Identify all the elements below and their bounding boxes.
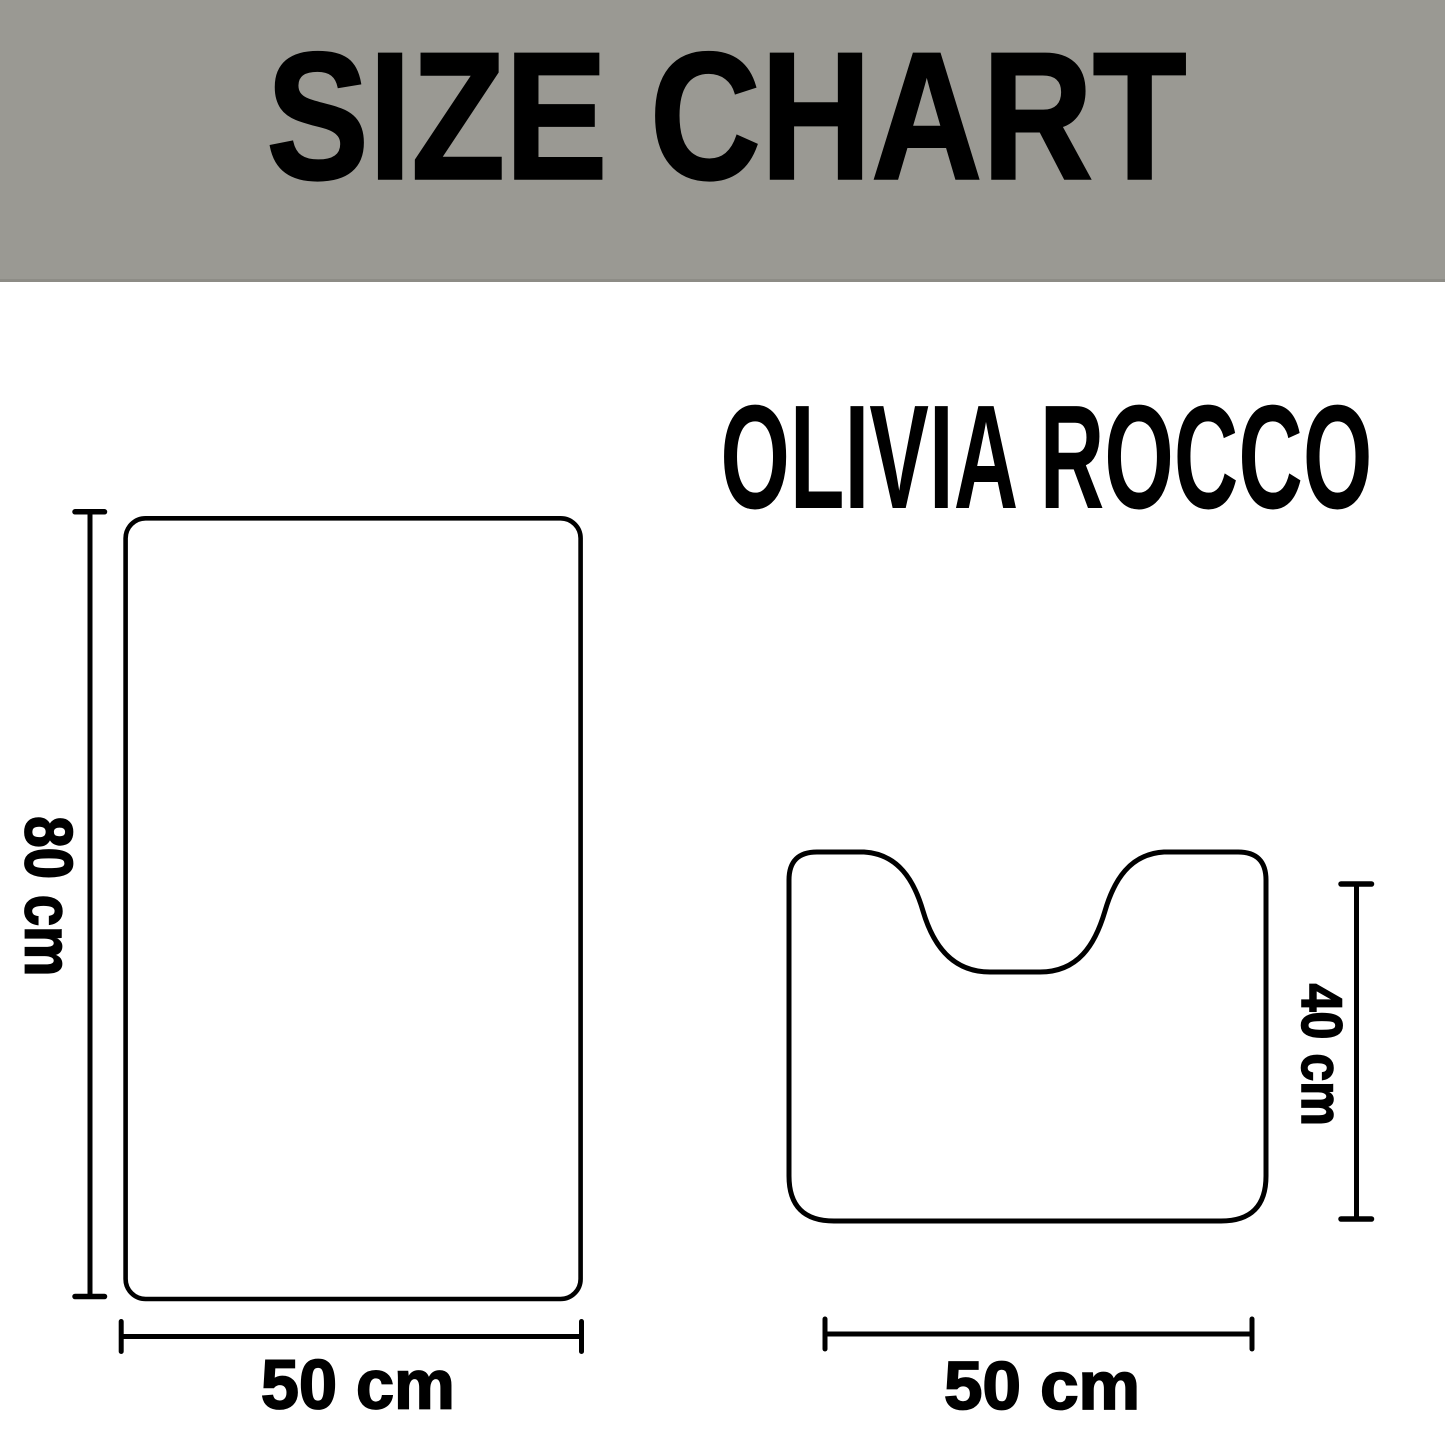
svg-text:40 cm: 40 cm [1289,984,1353,1126]
svg-text:50 cm: 50 cm [944,1348,1140,1424]
svg-text:50 cm: 50 cm [261,1346,455,1424]
svg-text:80 cm: 80 cm [10,816,84,976]
svg-text:SIZE CHART: SIZE CHART [267,16,1187,218]
svg-text:OLIVIA ROCCO: OLIVIA ROCCO [720,375,1372,540]
